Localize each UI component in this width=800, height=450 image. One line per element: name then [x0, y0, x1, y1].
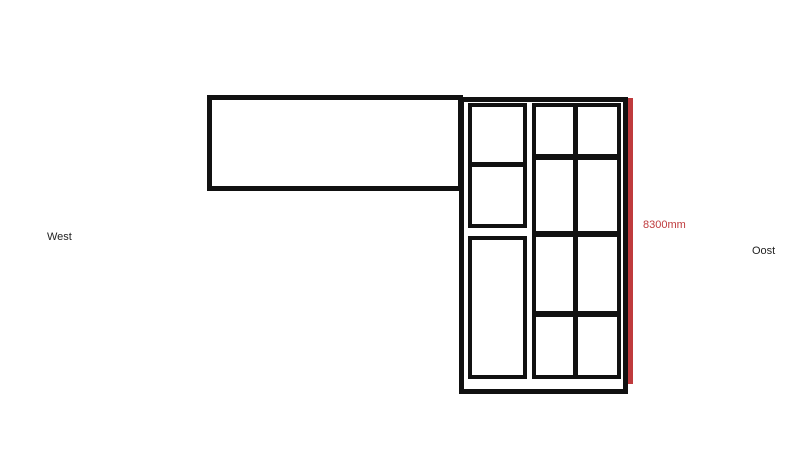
west-wing-outline	[207, 95, 463, 191]
inner-grid-box	[532, 103, 621, 379]
inner-box-upper-left	[468, 103, 527, 228]
oost-label: Oost	[752, 245, 775, 258]
inner-grid-horizontal-divider-2	[536, 231, 617, 237]
dimension-line	[628, 98, 633, 384]
inner-box-lower-left	[468, 236, 527, 379]
drawing-canvas: West Oost 8300mm	[0, 0, 800, 450]
inner-grid-vertical-divider	[573, 107, 578, 375]
inner-grid-horizontal-divider-3	[536, 311, 617, 317]
west-label: West	[47, 231, 72, 244]
inner-grid-horizontal-divider-1	[536, 154, 617, 160]
inner-box-upper-left-divider	[472, 162, 523, 167]
dimension-label: 8300mm	[643, 219, 686, 232]
